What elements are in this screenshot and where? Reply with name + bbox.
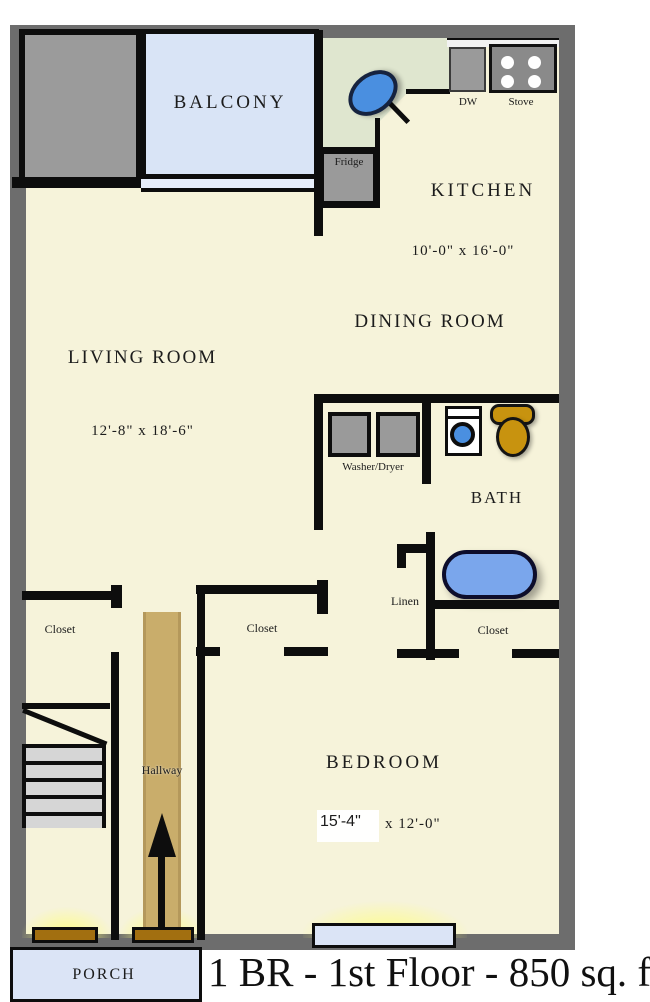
wall-below-utility-block	[12, 177, 143, 188]
laundry-divider-wall	[422, 399, 431, 484]
stove-box	[489, 44, 557, 93]
left-closet-north-wall	[22, 591, 122, 600]
bath-west-wall	[314, 394, 323, 530]
counter-edge-horizontal	[406, 89, 450, 94]
bedroom-closet-south-stub-right	[284, 647, 328, 656]
stove-burner	[528, 56, 541, 69]
counter-edge-vertical	[375, 118, 380, 150]
left-closet-east-cap	[111, 585, 122, 608]
toilet-bowl	[496, 417, 530, 457]
hallway-label: Hallway	[129, 763, 195, 778]
bedroom-closet-east-cap	[317, 580, 328, 614]
balcony-sliding-door	[141, 179, 319, 192]
washer-unit	[328, 412, 371, 457]
bedroom-window	[312, 923, 456, 948]
bath-label: BATH	[459, 488, 535, 508]
living-room-label: LIVING ROOM	[55, 347, 230, 369]
bedroom-closet-label: Closet	[231, 621, 293, 636]
bath-sink-top-line	[448, 416, 479, 419]
bedroom-dims-primary: 15'-4"	[320, 813, 378, 831]
kitchen-dims: 10'-0" x 16'-0"	[385, 243, 541, 260]
door-threshold-left	[32, 927, 98, 943]
linen-label: Linen	[383, 594, 427, 609]
kitchen-label: KITCHEN	[415, 180, 551, 202]
washer-dryer-label: Washer/Dryer	[326, 461, 420, 473]
stove-label: Stove	[490, 96, 552, 108]
linen-east-wall	[426, 532, 435, 660]
dryer-unit	[376, 412, 420, 457]
porch-label: PORCH	[25, 966, 183, 984]
floor-plan-page: { "title": "1 BR - 1st Floor - 850 sq. f…	[0, 0, 650, 989]
balcony-label: BALCONY	[150, 92, 310, 114]
bathtub	[442, 550, 537, 599]
stove-burner	[501, 56, 514, 69]
door-threshold-hall	[132, 927, 194, 943]
stairs-top-line	[22, 703, 110, 709]
dining-room-label: DINING ROOM	[342, 311, 518, 333]
left-closet-label: Closet	[29, 622, 91, 637]
bedroom-label: BEDROOM	[319, 752, 449, 774]
bath-sink-unit	[445, 406, 482, 456]
bedroom-dims-secondary: x 12'-0"	[385, 816, 455, 833]
fridge-label: Fridge	[320, 156, 378, 168]
bath-closet-south-wall	[512, 649, 559, 658]
linen-top-stub-v	[397, 544, 406, 568]
bath-north-wall	[314, 394, 559, 403]
gray-utility-block	[19, 29, 142, 188]
hallway-east-wall	[197, 586, 205, 940]
stairs-treads	[22, 744, 106, 828]
bedroom-closet-north-wall	[196, 585, 328, 594]
up-arrow-head	[148, 813, 176, 857]
linen-bottom-stub	[397, 649, 459, 658]
up-arrow-shaft	[158, 853, 165, 937]
dishwasher-box	[449, 47, 486, 92]
living-room-dims: 12'-8" x 18'-6"	[65, 423, 220, 440]
dishwasher-label: DW	[448, 96, 488, 108]
wall-below-tub	[434, 600, 559, 609]
hallway-west-wall	[111, 652, 119, 940]
bath-closet-label: Closet	[461, 623, 525, 638]
bath-sink-basin	[450, 422, 475, 447]
stove-burner	[501, 75, 514, 88]
stove-burner	[528, 75, 541, 88]
